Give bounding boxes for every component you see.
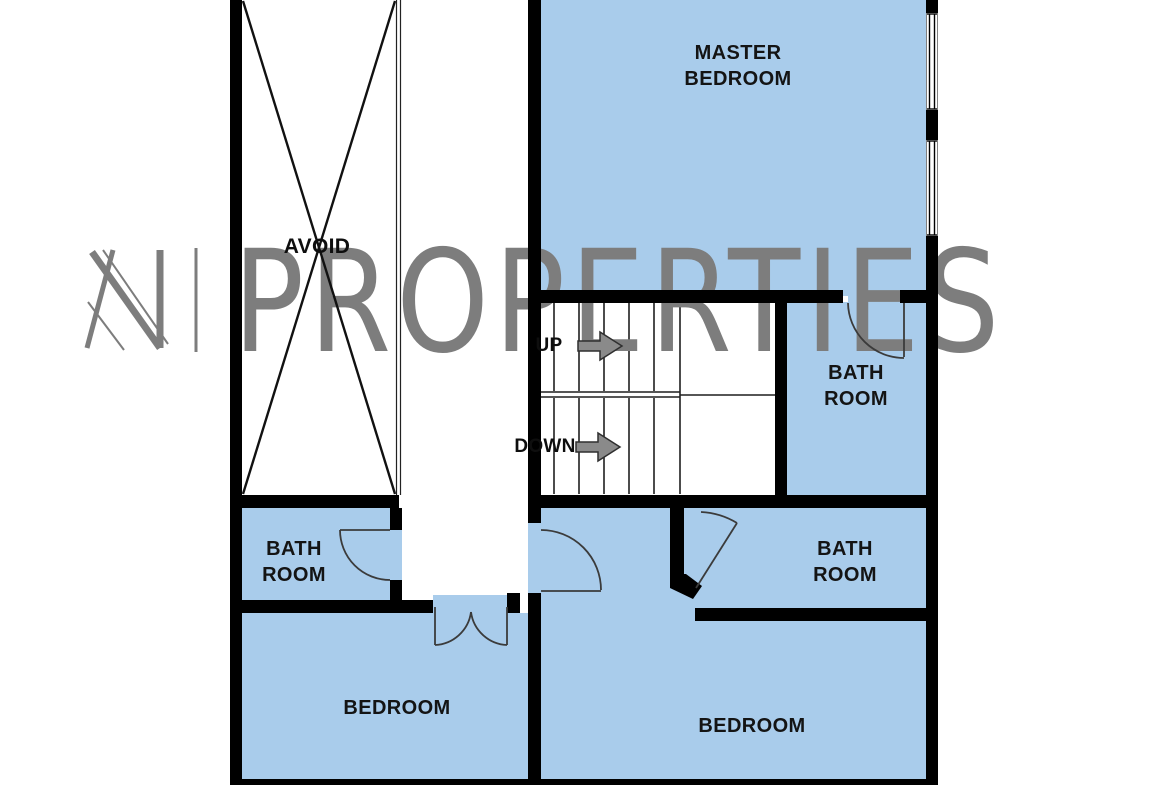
room-label-bath-right: BATH ROOM: [813, 536, 877, 588]
room-label-line: ROOM: [813, 562, 877, 588]
room-label-line: BEDROOM: [343, 695, 450, 721]
room-label-line: BATH: [824, 360, 888, 386]
room-label-master-bedroom: MASTER BEDROOM: [684, 40, 791, 92]
room-label-line: BATH: [813, 536, 877, 562]
stairs-up-label: UP: [536, 335, 563, 357]
room-label-bedroom-right: BEDROOM: [698, 713, 805, 739]
room-label-bedroom-left: BEDROOM: [343, 695, 450, 721]
room-label-line: ROOM: [262, 562, 326, 588]
room-label-line: ROOM: [824, 386, 888, 412]
room-label-line: MASTER: [684, 40, 791, 66]
stairs-down-label: DOWN: [514, 436, 575, 458]
floor-plan: PROPERTIES: [0, 0, 1170, 785]
room-label-line: BATH: [262, 536, 326, 562]
avoid-label: AVOID: [284, 235, 350, 259]
labels-layer: MASTER BEDROOM BATH ROOM BATH ROOM BATH …: [0, 0, 1170, 785]
room-label-line: BEDROOM: [684, 66, 791, 92]
room-label-bath-left: BATH ROOM: [262, 536, 326, 588]
room-label-line: BEDROOM: [698, 713, 805, 739]
room-label-bath-ensuite: BATH ROOM: [824, 360, 888, 412]
